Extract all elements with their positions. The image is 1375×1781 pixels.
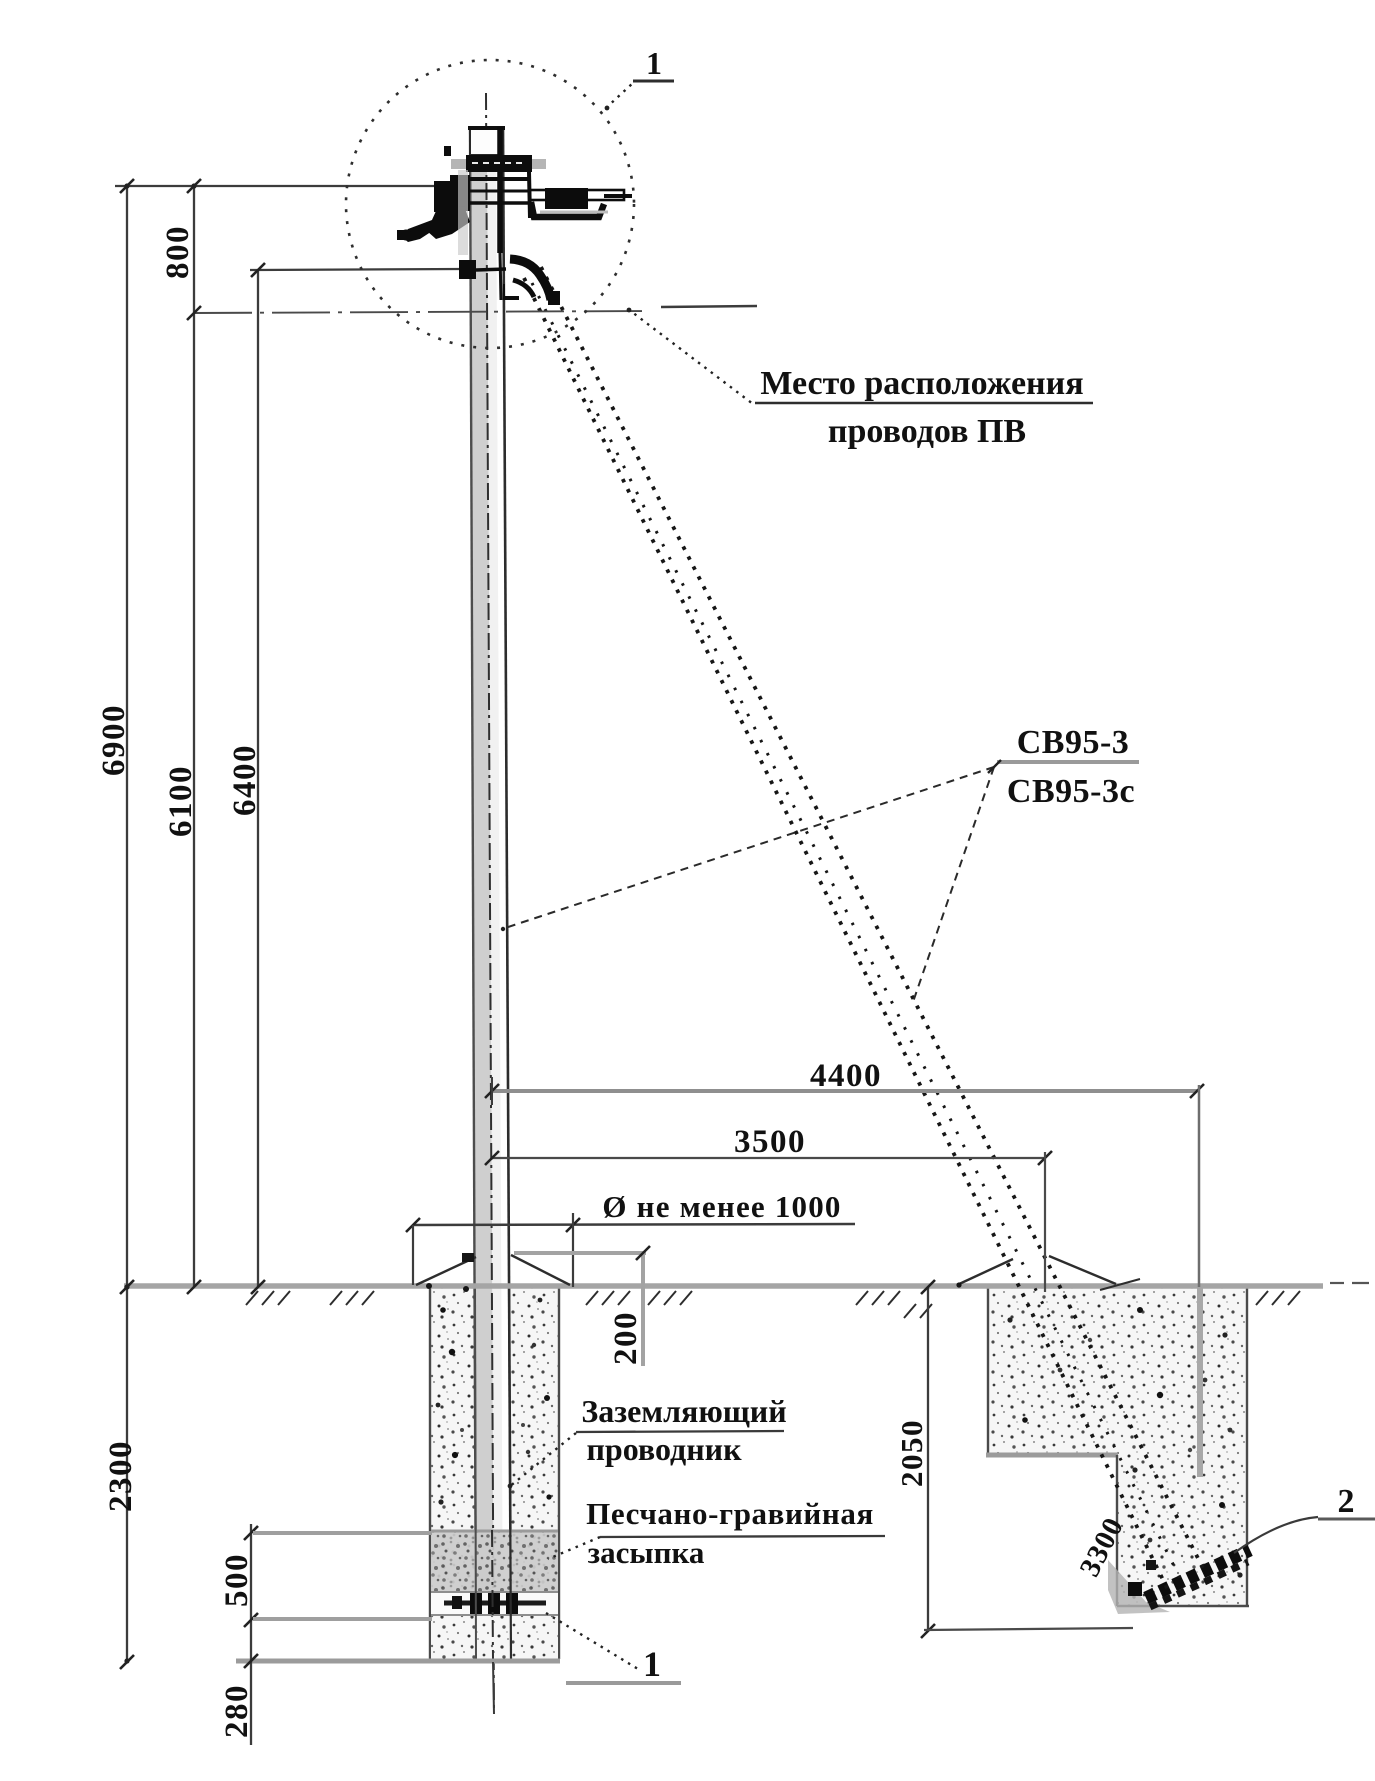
svg-text:6400: 6400 [227,744,263,816]
svg-text:800: 800 [160,225,196,279]
svg-text:200: 200 [608,1311,644,1365]
svg-text:проводник: проводник [586,1431,742,1467]
svg-text:3500: 3500 [734,1124,806,1160]
svg-text:2300: 2300 [103,1440,139,1512]
svg-text:500: 500 [219,1553,255,1607]
svg-text:4400: 4400 [810,1058,882,1094]
svg-text:280: 280 [219,1684,255,1738]
svg-text:проводов ПВ: проводов ПВ [828,413,1026,450]
svg-text:6900: 6900 [96,704,132,776]
svg-text:2: 2 [1338,1483,1355,1520]
svg-text:Заземляющий: Заземляющий [581,1393,786,1429]
svg-text:6100: 6100 [163,765,199,837]
svg-text:Песчано-гравийная: Песчано-гравийная [586,1496,874,1531]
svg-text:1: 1 [643,1644,661,1684]
svg-text:Ø не менее 1000: Ø не менее 1000 [602,1189,841,1224]
svg-text:1: 1 [646,45,662,81]
svg-text:2050: 2050 [894,1419,929,1487]
svg-text:СВ95-3с: СВ95-3с [1007,773,1135,810]
svg-text:Место расположения: Место расположения [760,365,1083,402]
svg-text:засыпка: засыпка [588,1535,705,1570]
svg-text:СВ95-3: СВ95-3 [1017,724,1130,761]
